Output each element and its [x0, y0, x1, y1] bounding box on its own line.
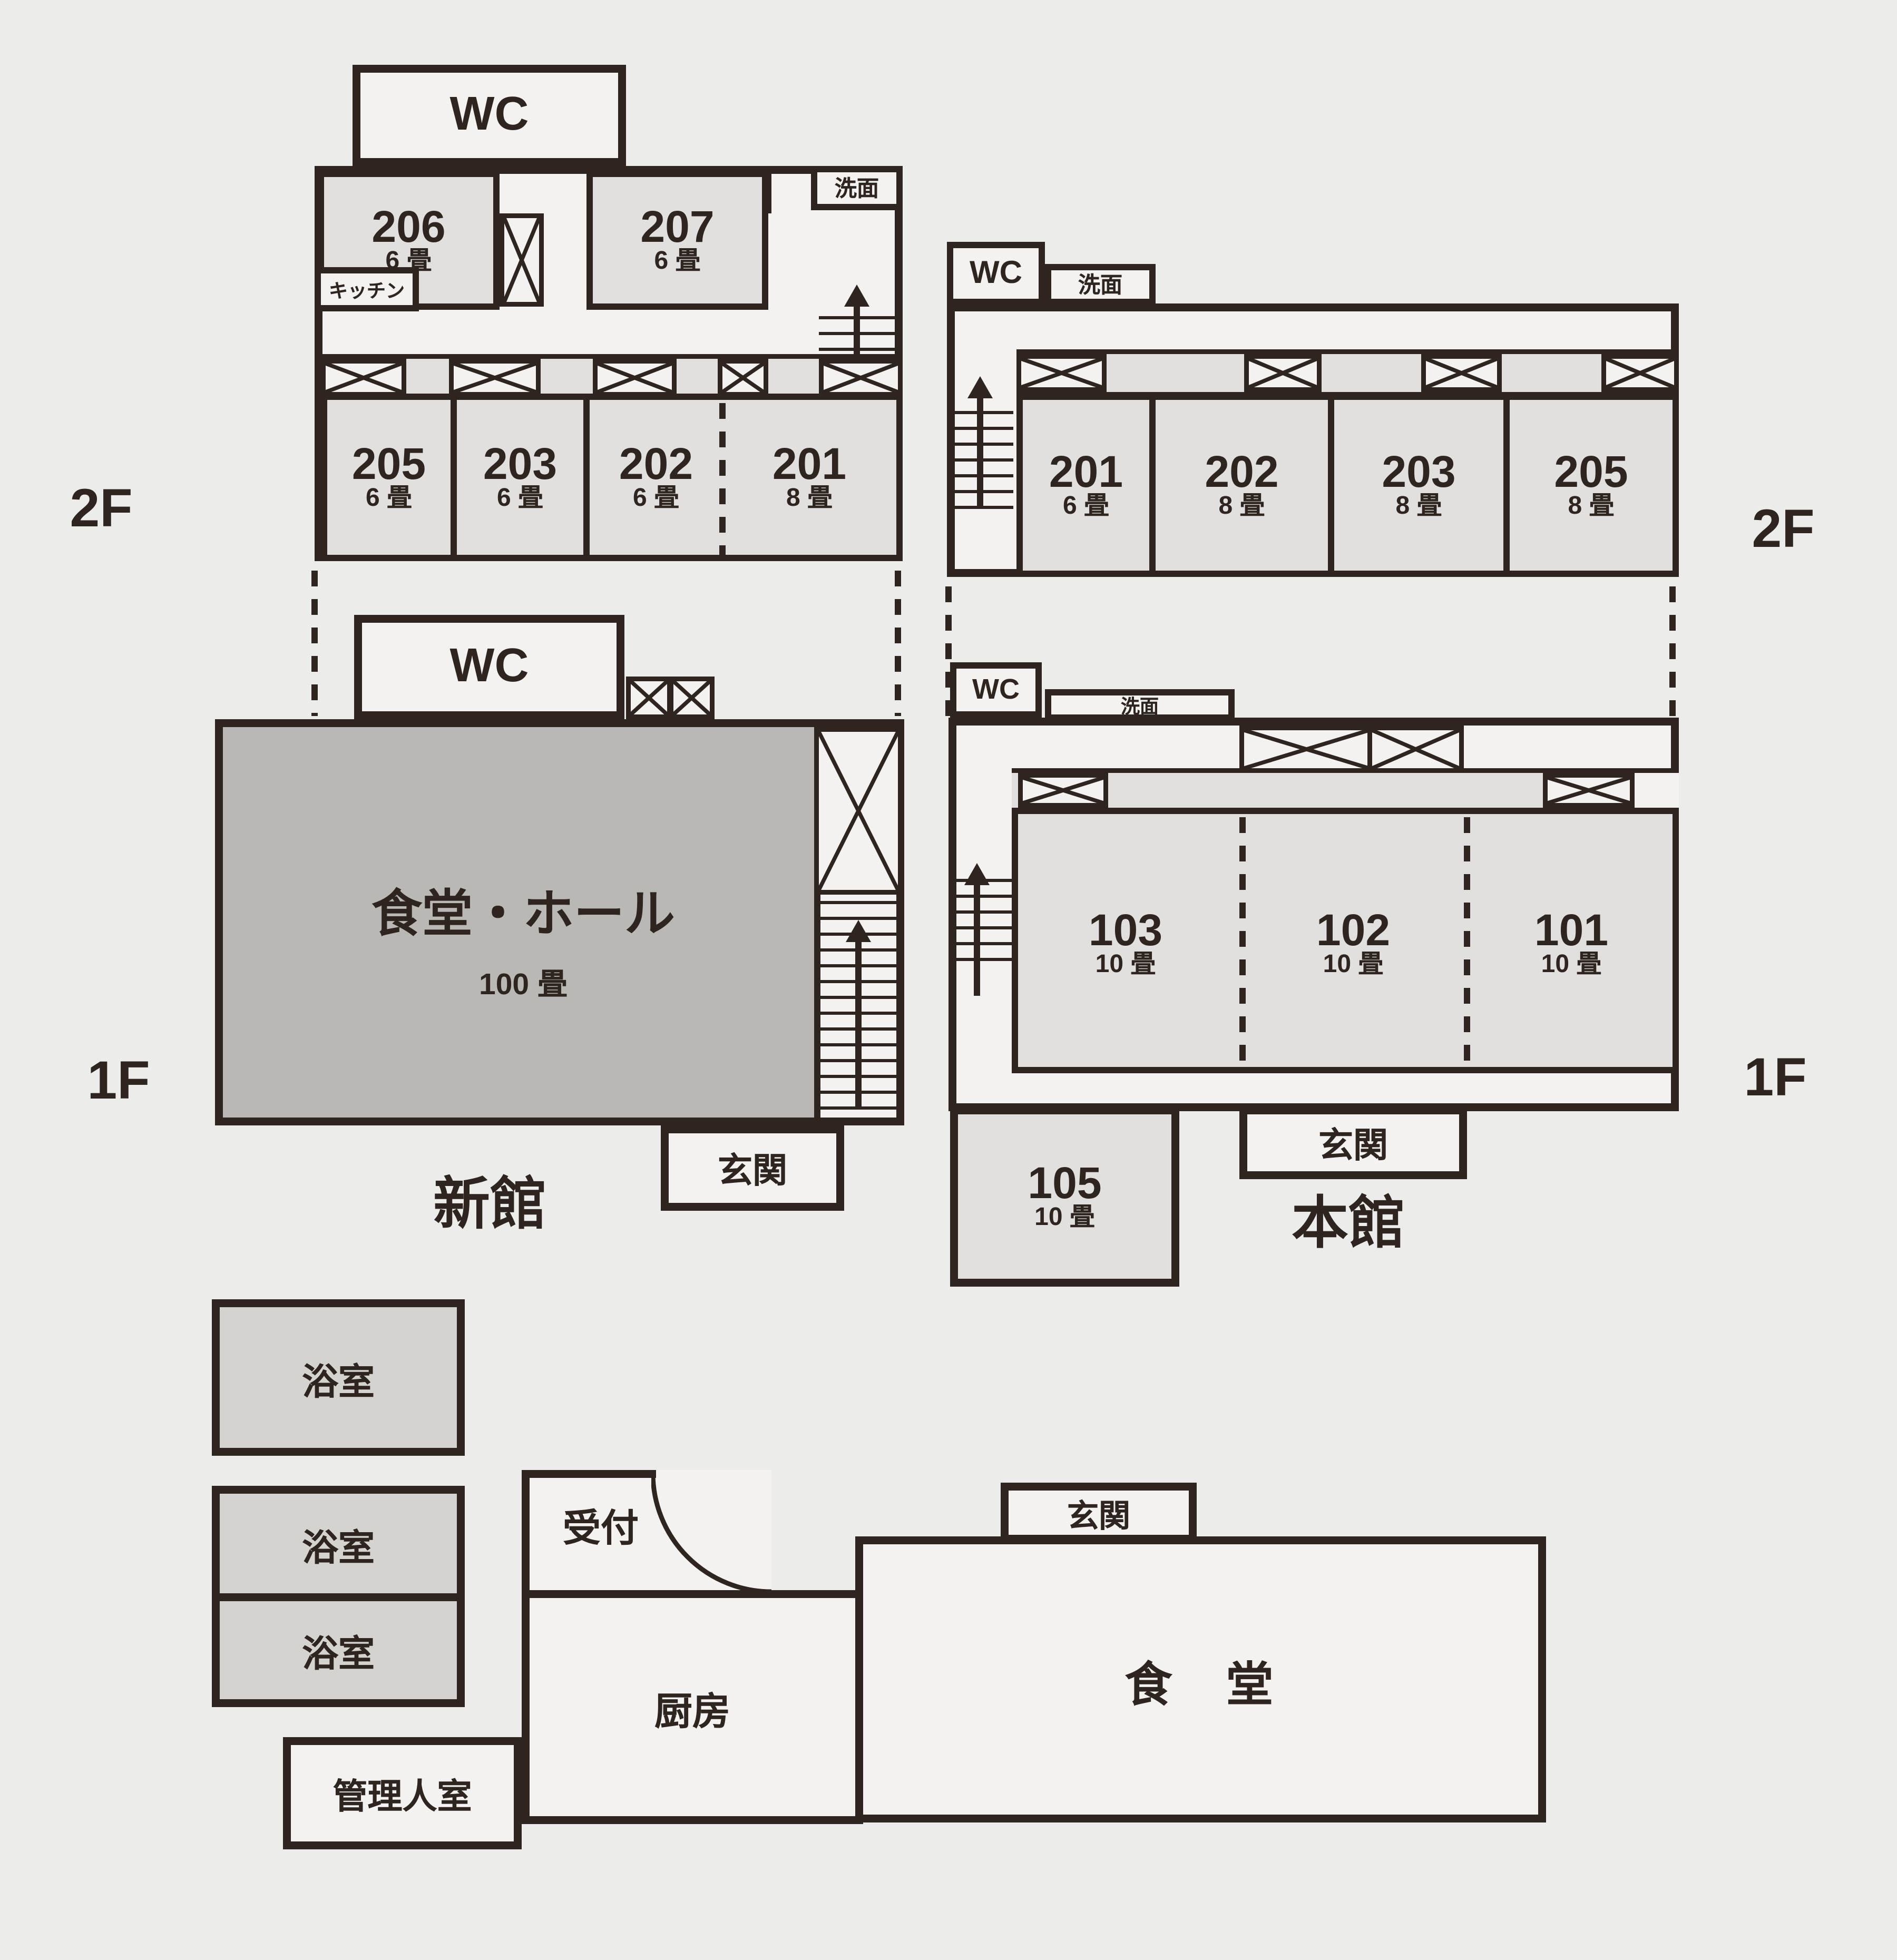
up-arrow-icon	[964, 863, 990, 996]
shinkan-2f-wc-room: WC	[353, 65, 626, 166]
honkan-name-label: 本館	[1254, 1190, 1443, 1257]
room-size: 6 畳	[497, 487, 543, 514]
senmen-label: 洗面	[1078, 269, 1122, 300]
shinkan-1f-wc-label: WC	[450, 640, 529, 694]
floor-label-1f-left: 1F	[71, 1050, 166, 1113]
room-number: 101	[1534, 907, 1608, 954]
honkan-1f-wc-room: WC	[950, 662, 1042, 718]
closet-x-icon	[1367, 726, 1464, 773]
room-number: 205	[1554, 449, 1628, 495]
room-shinkan-201: 201 8 畳	[722, 394, 903, 561]
room-honkan-201: 201 6 畳	[1016, 394, 1156, 577]
ground-genkan-box: 玄関	[1001, 1483, 1197, 1543]
kitchen-room-label: 厨房	[654, 1680, 730, 1735]
honkan-1f-senmen-box: 洗面	[1045, 689, 1235, 721]
up-arrow-icon	[967, 376, 993, 509]
room-number: 203	[483, 441, 557, 487]
closet-x-icon	[1601, 354, 1679, 392]
closet-x-icon	[593, 359, 677, 397]
room-number: 202	[1205, 449, 1278, 495]
wall-segment	[765, 171, 771, 213]
room-honkan-203: 203 8 畳	[1328, 394, 1510, 577]
room-size: 10 畳	[1034, 1207, 1095, 1233]
room-number: 203	[1382, 449, 1455, 495]
honkan-1f-closet-strip	[1012, 768, 1679, 812]
dashed-partition	[1239, 817, 1246, 1064]
room-number: 103	[1089, 907, 1162, 954]
closet-x-icon	[814, 727, 903, 895]
hall-size-label: 100 畳	[381, 964, 666, 1005]
floor-label-2f-right: 2F	[1736, 498, 1831, 561]
room-honkan-103: 103 10 畳	[1047, 893, 1205, 994]
floor-label-2f-left: 2F	[54, 477, 149, 541]
dashed-partition	[1464, 817, 1470, 1064]
room-number: 206	[371, 204, 445, 250]
room-size: 8 畳	[786, 487, 833, 514]
floor-connector-dash	[311, 571, 318, 716]
dining-hall-room: 食 堂	[855, 1536, 1546, 1822]
bath-room-1: 浴室	[212, 1299, 465, 1456]
closet-x-icon	[626, 677, 672, 719]
genkan-label: 玄関	[1067, 1490, 1130, 1536]
dining-label: 食 堂	[1125, 1645, 1277, 1714]
kitchen-label: キッチン	[329, 276, 405, 303]
room-number: 207	[640, 204, 714, 250]
shinkan-2f-kitchen-box: キッチン	[315, 267, 419, 311]
room-size: 8 畳	[1395, 495, 1442, 522]
honkan-2f-closet-strip	[1016, 349, 1679, 397]
room-size: 6 畳	[366, 487, 412, 514]
bath-room-3: 浴室	[212, 1593, 465, 1707]
senmen-label: 洗面	[1121, 692, 1159, 719]
room-shinkan-205: 205 6 畳	[321, 394, 457, 561]
dashed-partition	[719, 403, 726, 555]
room-size: 10 畳	[1323, 954, 1384, 980]
senmen-label: 洗面	[835, 172, 879, 204]
room-honkan-202: 202 8 畳	[1149, 394, 1334, 577]
room-size: 6 畳	[1063, 495, 1109, 522]
room-size: 6 畳	[633, 487, 679, 514]
closet-x-icon	[1543, 773, 1635, 808]
closet-x-icon	[1244, 354, 1322, 392]
room-size: 6 畳	[654, 250, 700, 277]
genkan-label: 玄関	[718, 1143, 787, 1193]
shinkan-name-label: 新館	[395, 1171, 585, 1238]
room-shinkan-207: 207 6 畳	[586, 171, 768, 310]
room-honkan-205: 205 8 畳	[1503, 394, 1679, 577]
room-number: 205	[352, 441, 426, 487]
floorplan-canvas: WC 206 6 畳 キッチン 207 6 畳 洗面	[0, 0, 1897, 1960]
shinkan-genkan-box: 玄関	[661, 1125, 844, 1211]
closet-x-icon	[718, 359, 768, 397]
door-arc-icon	[651, 1473, 771, 1593]
room-number: 202	[619, 441, 693, 487]
up-arrow-icon	[846, 920, 871, 1110]
room-number: 105	[1028, 1160, 1101, 1207]
shinkan-2f-wc-label: WC	[450, 89, 529, 142]
closet-x-icon	[321, 359, 406, 397]
genkan-label: 玄関	[1318, 1118, 1388, 1168]
honkan-2f-wc-label: WC	[970, 256, 1022, 292]
shinkan-2f-senmen-box: 洗面	[811, 166, 903, 210]
reception-label: 受付	[537, 1502, 664, 1559]
closet-x-icon	[1421, 354, 1502, 392]
closet-x-icon	[1018, 773, 1108, 808]
room-shinkan-203: 203 6 畳	[451, 394, 590, 561]
hall-name-label: 食堂・ホール	[302, 882, 745, 945]
bath-room-2: 浴室	[212, 1486, 465, 1601]
closet-x-icon	[1016, 354, 1107, 392]
honkan-genkan-box: 玄関	[1239, 1106, 1467, 1179]
room-number: 201	[773, 441, 846, 487]
floor-connector-dash	[1669, 586, 1676, 716]
bath-label: 浴室	[302, 1351, 375, 1405]
room-size: 10 畳	[1541, 954, 1602, 980]
honkan-1f-wc-label: WC	[972, 673, 1020, 707]
room-size: 8 畳	[1568, 495, 1614, 522]
up-arrow-icon	[844, 285, 869, 359]
kitchen-room: 厨房	[522, 1590, 863, 1824]
room-number: 102	[1316, 907, 1390, 954]
shinkan-1f-wc-room: WC	[354, 615, 624, 719]
floorplan-stage: WC 206 6 畳 キッチン 207 6 畳 洗面	[0, 0, 1897, 1960]
room-shinkan-202: 202 6 畳	[583, 394, 722, 561]
wall-segment	[522, 1470, 656, 1478]
room-number: 201	[1049, 449, 1123, 495]
room-honkan-105: 105 10 畳	[950, 1106, 1179, 1287]
honkan-2f-wc-room: WC	[947, 242, 1045, 305]
manager-room: 管理人室	[283, 1737, 522, 1849]
manager-label: 管理人室	[333, 1768, 472, 1819]
room-size: 8 畳	[1218, 495, 1265, 522]
room-honkan-102: 102 10 畳	[1274, 893, 1432, 994]
bath-label: 浴室	[302, 1517, 375, 1571]
room-honkan-101: 101 10 畳	[1492, 893, 1650, 994]
closet-x-icon	[1239, 726, 1374, 773]
closet-x-icon	[449, 359, 541, 397]
corridor-gap	[1635, 773, 1679, 808]
honkan-2f-senmen-box: 洗面	[1045, 264, 1156, 305]
bath-label: 浴室	[302, 1623, 375, 1677]
floor-connector-dash	[895, 571, 901, 716]
closet-x-icon	[819, 359, 903, 397]
closet-x-icon	[500, 213, 544, 307]
closet-x-icon	[669, 677, 715, 719]
floor-label-1f-right: 1F	[1728, 1046, 1823, 1110]
room-size: 10 畳	[1096, 954, 1156, 980]
